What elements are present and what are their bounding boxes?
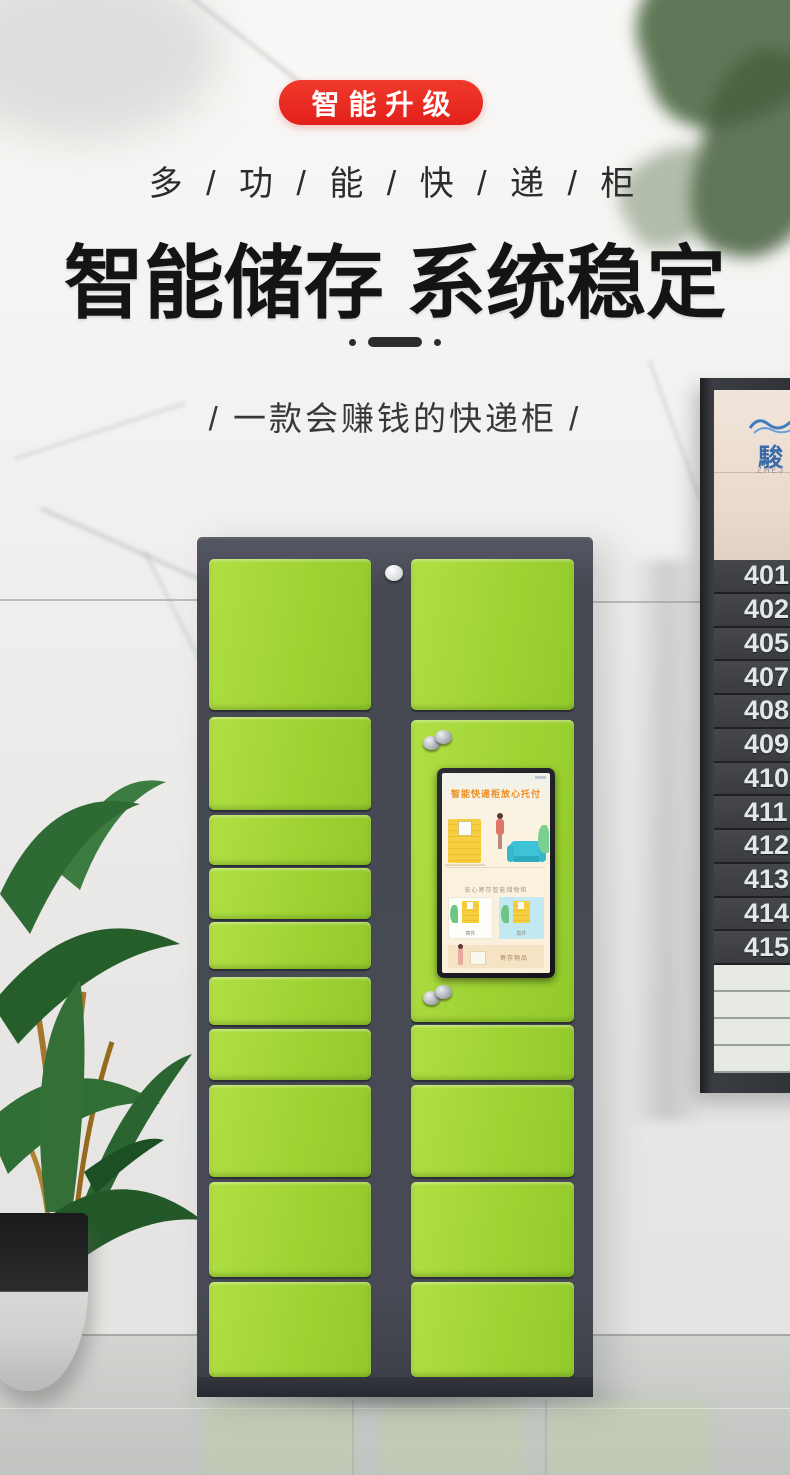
signboard-brand-en: ZHEJ	[757, 466, 785, 475]
signboard-header: 駿 ZHEJ	[714, 390, 790, 560]
marble-streak	[630, 560, 704, 1120]
locker-base	[197, 1377, 593, 1397]
locker-door	[411, 1025, 574, 1080]
screen-bottom-card: 寄存物品	[448, 945, 544, 968]
empty-slot-row	[714, 965, 790, 992]
kiosk-panel: 智能快递柜放心托付 安心寄存智能储物柜	[411, 720, 574, 1022]
room-number-row: 412	[714, 830, 790, 864]
divider-dot	[434, 339, 441, 346]
screen-bottom-label: 寄存物品	[500, 953, 528, 962]
locker-door	[209, 1029, 371, 1080]
locker-door	[411, 1282, 574, 1377]
empty-slot-row	[714, 992, 790, 1019]
illustration-locker-base	[445, 864, 485, 866]
room-number-row: 414	[714, 898, 790, 932]
screen-card-right: 取件	[499, 897, 544, 939]
floor-tile-seam	[545, 1400, 547, 1475]
signboard-logo: 駿 ZHEJ	[748, 414, 790, 441]
screen-illustration	[442, 807, 550, 879]
locker-door	[209, 1182, 371, 1277]
screen-caption: 安心寄存智能储物柜	[442, 885, 550, 894]
signboard-face: 駿 ZHEJ 401402405407408409410411412413414…	[714, 390, 790, 1073]
marble-blotch	[0, 0, 220, 140]
illustration-floor-line	[447, 867, 545, 868]
screen-card-left: 寄件	[448, 897, 493, 939]
room-number-row: 415	[714, 931, 790, 965]
illustration-person-body	[496, 819, 504, 835]
empty-slot-list	[714, 965, 790, 1073]
room-number-row: 408	[714, 695, 790, 729]
locker-door	[411, 1182, 574, 1277]
locker-door	[209, 868, 371, 919]
locker-floor-reflection	[548, 1402, 708, 1475]
mini-locker-icon	[513, 901, 530, 923]
title-divider	[0, 337, 790, 347]
kiosk-screen: 智能快递柜放心托付 安心寄存智能储物柜	[437, 768, 555, 978]
locker-door	[209, 559, 371, 710]
kiosk-screen-content: 智能快递柜放心托付 安心寄存智能储物柜	[442, 773, 550, 973]
locker-door	[209, 977, 371, 1025]
locker-column-right: 智能快递柜放心托付 安心寄存智能储物柜	[411, 539, 574, 1397]
locker-door	[209, 1282, 371, 1377]
mini-plant-icon	[501, 905, 509, 923]
locker-door	[209, 717, 371, 810]
door-knob-pair	[423, 730, 457, 752]
screen-card-label: 取件	[499, 930, 544, 937]
wall-seam	[0, 599, 197, 601]
locker-door	[411, 1085, 574, 1177]
room-number-row: 401	[714, 560, 790, 594]
wave-logo-icon	[748, 414, 790, 436]
illustration-plant	[538, 825, 549, 853]
room-number-row: 402	[714, 594, 790, 628]
locker-door	[209, 1085, 371, 1177]
locker-column-left	[209, 539, 371, 1397]
mini-plant-icon	[450, 905, 458, 923]
room-number-signboard: 駿 ZHEJ 401402405407408409410411412413414…	[700, 378, 790, 1093]
parcel-locker-cabinet: 智能快递柜放心托付 安心寄存智能储物柜	[197, 537, 593, 1397]
room-number-row: 411	[714, 796, 790, 830]
page-title: 智能储存 系统稳定	[0, 219, 790, 335]
mini-locker-icon	[462, 901, 479, 923]
promo-badge: 智能升级	[279, 80, 483, 125]
door-knob-pair	[423, 985, 457, 1007]
tagline: 多 / 功 / 能 / 快 / 递 / 柜	[0, 156, 790, 205]
divider-dot	[349, 339, 356, 346]
room-number-row: 409	[714, 729, 790, 763]
illustration-locker-door	[458, 821, 472, 836]
room-number-row: 407	[714, 661, 790, 695]
divider-bar	[368, 337, 422, 347]
room-number-row: 410	[714, 763, 790, 797]
locker-floor-reflection	[382, 1402, 527, 1475]
empty-slot-row	[714, 1046, 790, 1073]
locker-door	[209, 815, 371, 865]
room-number-list: 401402405407408409410411412413414415	[714, 560, 790, 965]
illustration-locker	[448, 819, 481, 863]
lock-indicator-light	[385, 565, 403, 581]
mini-parcel-icon	[470, 951, 486, 965]
subtitle: / 一款会赚钱的快递柜 /	[0, 392, 790, 440]
locker-door	[411, 559, 574, 710]
locker-floor-reflection	[205, 1402, 353, 1475]
product-poster: 智能升级 多 / 功 / 能 / 快 / 递 / 柜 智能储存 系统稳定 / 一…	[0, 0, 790, 1475]
screen-card-label: 寄件	[448, 930, 493, 937]
screen-corner-logo	[535, 776, 546, 779]
locker-door	[209, 922, 371, 969]
screen-title: 智能快递柜放心托付	[442, 787, 550, 800]
door-knob	[435, 985, 452, 999]
door-knob	[435, 730, 452, 744]
empty-slot-row	[714, 1019, 790, 1046]
mini-person-icon	[458, 947, 463, 965]
promo-badge-label: 智能升级	[302, 83, 459, 123]
room-number-row: 405	[714, 628, 790, 662]
illustration-person-legs	[498, 835, 502, 849]
wall-seam	[593, 601, 700, 603]
room-number-row: 413	[714, 864, 790, 898]
